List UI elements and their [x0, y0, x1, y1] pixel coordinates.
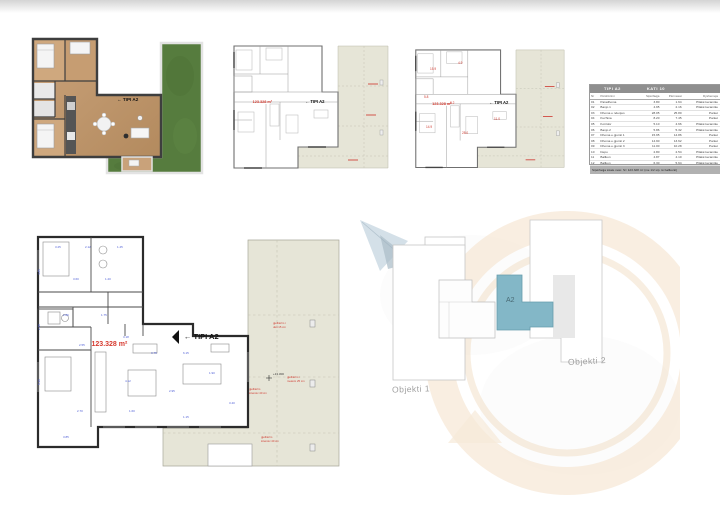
- col-header-siperfaqja: Sipërfaqja: [639, 94, 661, 98]
- apartment-outline: [38, 237, 248, 447]
- tip-a2-label: ← TIPI A2: [117, 98, 138, 103]
- unit-a2-label: A2: [506, 297, 515, 304]
- table-body: 01Paradhoma3.801.64Pllakë keramike02Banj…: [590, 100, 720, 167]
- rendered-floor-plan: ← TIPI A2: [30, 36, 204, 178]
- annotation-text: 15.9: [430, 68, 436, 71]
- tip-a2-label: ← TIPI A2: [489, 101, 508, 105]
- dimension-text: 2.95: [169, 390, 175, 393]
- area-value: 123.328 m²: [432, 103, 451, 107]
- dimension-text: 1.45: [117, 246, 123, 249]
- dimension-text: 3.75: [151, 352, 157, 355]
- annotation-text: intensiv 40 cm: [249, 392, 267, 395]
- total-area-text: Sipërfaqja totale neto: S= 123.328 m² (m…: [592, 168, 677, 172]
- main-dimensioned-plan: 123.328 m² ← TIPI A2 +13.300 3.252.121.4…: [33, 232, 341, 476]
- dimension-text: 1.90: [209, 372, 215, 375]
- table-title-bar: TIPI A2 KATI 10: [590, 85, 720, 93]
- plan-sheet: { "sheet": { "tip_label": "← TIPI A2", "…: [0, 0, 720, 507]
- objekti-1-label: Objekti 1: [392, 384, 430, 394]
- top-edge-shadow: [0, 0, 720, 13]
- dimension-text: 3.60: [73, 278, 79, 281]
- area-value: 123.328 m²: [253, 101, 272, 105]
- dimension-text: 2.40: [38, 324, 41, 330]
- site-key-plan: A2 Objekti 1 Objekti 2: [350, 205, 680, 505]
- dimension-text: 3.40: [229, 402, 235, 405]
- table-footer: Sipërfaqja totale neto: S= 123.328 m² (m…: [590, 166, 720, 174]
- schematic-plan-1: 123.328 m² ← TIPI A2: [228, 40, 392, 185]
- dimension-text: 2.86: [63, 314, 69, 317]
- annotation-text: 14.9: [426, 126, 432, 129]
- table-header-row: Nr Përshkrimi Sipërfaqja Përmasat Dyshem…: [590, 93, 720, 100]
- elevation-value: +13.300: [273, 373, 284, 376]
- dimension-text: 3.18: [123, 336, 129, 339]
- room-schedule-table: TIPI A2 KATI 10 Nr Përshkrimi Sipërfaqja…: [589, 84, 720, 165]
- dimension-text: 1.20: [105, 278, 111, 281]
- annotation-text: 8.2: [450, 102, 454, 105]
- dimension-text: 2.12: [85, 246, 91, 249]
- col-header-nr: Nr: [590, 94, 600, 98]
- objekti-2-label: Objekti 2: [568, 356, 606, 366]
- col-header-pershkrimi: Përshkrimi: [600, 94, 639, 98]
- annotation-text: 11.0: [494, 118, 500, 121]
- col-header-dyshemeja: Dyshemeja: [684, 94, 720, 98]
- dimension-text: 1.60: [129, 410, 135, 413]
- table-title: TIPI A2: [604, 86, 621, 91]
- dimension-text: 3.25: [55, 246, 61, 249]
- schematic-plan-2: 123.328 m² ← TIPI A2 15.94.95.88.214.928…: [410, 40, 568, 188]
- annotation-text: 28.0: [462, 132, 468, 135]
- dimension-text: 2.55: [79, 344, 85, 347]
- col-header-permasat: Përmasat: [661, 94, 683, 98]
- annotation-text: 5.8: [424, 96, 428, 99]
- table-subtitle: KATI 10: [647, 86, 665, 91]
- dimension-text: 4.85: [38, 269, 41, 275]
- area-value-main: 123.328 m²: [92, 341, 128, 348]
- annotation-text: 4.9: [458, 62, 462, 65]
- dimension-text: 2.70: [77, 410, 83, 413]
- tip-a2-label-main: ← TIPI A2: [184, 333, 219, 341]
- dimension-text: 1.15: [183, 416, 189, 419]
- annotation-text: intensiv 40 cm: [261, 440, 279, 443]
- dimension-text: 3.85: [63, 436, 69, 439]
- dimension-text: 5.30: [38, 379, 41, 385]
- annotation-text: ulët 15 cm: [273, 326, 286, 329]
- dimension-text: 6.15: [183, 352, 189, 355]
- dimension-text: 1.75: [101, 314, 107, 317]
- annotation-text: mesëm 25 cm: [287, 380, 305, 383]
- dimension-text: 4.12: [125, 380, 131, 383]
- tip-a2-label: ← TIPI A2: [305, 100, 324, 104]
